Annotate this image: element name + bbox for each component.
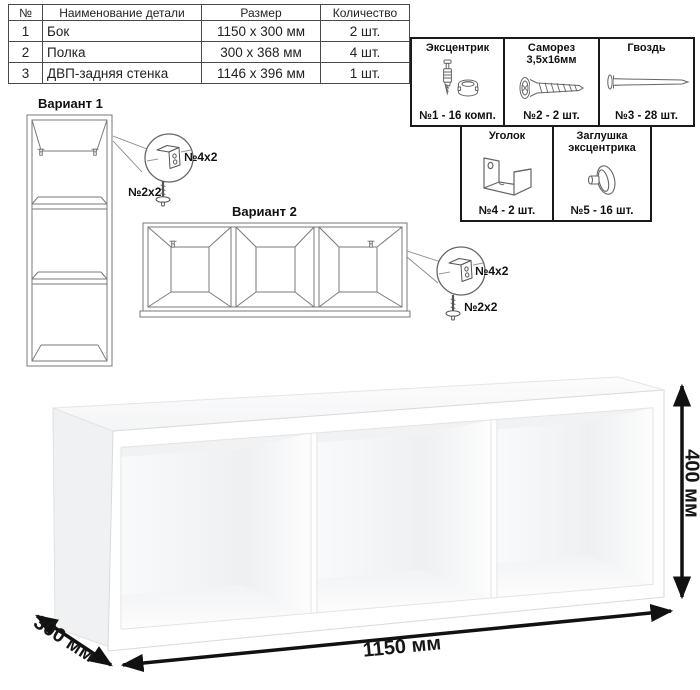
hardware-cell-nail: Гвоздь №3 - 28 шт.	[598, 37, 695, 127]
hardware-qty: №3 - 28 шт.	[615, 110, 678, 125]
variant-diagrams	[0, 88, 520, 380]
hardware-title: Заглушка эксцентрика	[554, 127, 650, 155]
hardware-title: Саморез 3,5х16мм	[505, 39, 598, 67]
nail-icon	[604, 54, 690, 110]
compartment-back	[497, 423, 587, 564]
hardware-title: Гвоздь	[625, 39, 667, 54]
cell-size: 1150 x 300 мм	[202, 21, 321, 42]
divider-side	[587, 408, 653, 585]
table-row: 2 Полка 300 x 368 мм 4 шт.	[9, 42, 410, 63]
mounting-bracket-icon	[368, 241, 375, 247]
cell-num: 3	[9, 63, 43, 84]
divider-side	[242, 433, 311, 613]
header-size: Размер	[202, 5, 321, 21]
height-dimension-label: 400 мм	[680, 434, 700, 534]
table-row: 1 Бок 1150 x 300 мм 2 шт.	[9, 21, 410, 42]
cell-qty: 1 шт.	[321, 63, 410, 84]
table-row: 3 ДВП-задняя стенка 1146 x 396 мм 1 шт.	[9, 63, 410, 84]
cell-qty: 4 шт.	[321, 42, 410, 63]
compartment-back	[121, 449, 242, 596]
cell-size: 1146 x 396 мм	[202, 63, 321, 84]
cell-qty: 2 шт.	[321, 21, 410, 42]
cell-num: 1	[9, 21, 43, 42]
screw-qty-label: №2х2	[128, 185, 161, 199]
hardware-cell-cap: Заглушка эксцентрика №5 - 16 шт.	[552, 125, 652, 222]
variant2-shelf-drawing	[140, 223, 410, 317]
cell-num: 2	[9, 42, 43, 63]
header-name: Наименование детали	[43, 5, 202, 21]
cell-name: Бок	[43, 21, 202, 42]
header-num: №	[9, 5, 43, 21]
bracket-qty-label: №4х2	[475, 264, 508, 278]
screw-icon	[446, 295, 460, 320]
cell-size: 300 x 368 мм	[202, 42, 321, 63]
divider-side	[420, 420, 491, 598]
assembly-instruction-page: { "parts_table": { "headers": { "num": "…	[0, 0, 700, 690]
parts-table: № Наименование детали Размер Количество …	[8, 4, 410, 84]
header-qty: Количество	[321, 5, 410, 21]
unit-left-face	[53, 408, 113, 648]
screw-qty-label: №2х2	[464, 300, 497, 314]
cam-cap-icon	[582, 155, 622, 205]
hardware-qty: №5 - 16 шт.	[571, 205, 634, 220]
cell-name: Полка	[43, 42, 202, 63]
shelf-unit-3d	[53, 377, 664, 651]
compartment-back	[317, 435, 420, 579]
hardware-qty: №2 - 2 шт.	[523, 110, 579, 125]
variant2-title: Вариант 2	[232, 204, 297, 219]
screw-icon	[515, 67, 589, 110]
cell-name: ДВП-задняя стенка	[43, 63, 202, 84]
mounting-bracket-icon	[38, 149, 45, 155]
bracket-qty-label: №4х2	[184, 150, 217, 164]
hardware-title: Эксцентрик	[424, 39, 491, 54]
parts-table-header-row: № Наименование детали Размер Количество	[9, 5, 410, 21]
variant1-title: Вариант 1	[38, 96, 103, 111]
